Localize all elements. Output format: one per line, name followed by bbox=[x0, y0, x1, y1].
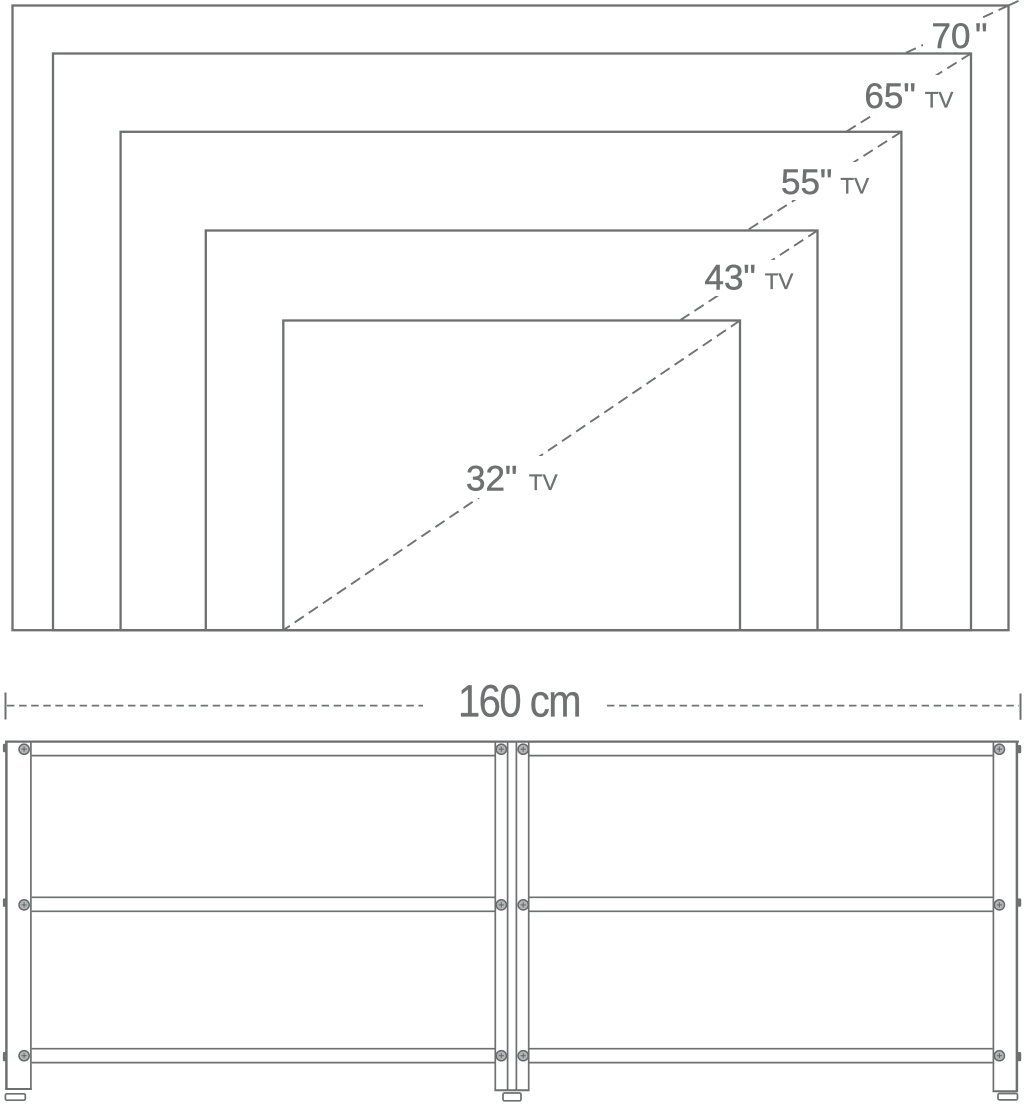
svg-text:43": 43" bbox=[705, 259, 756, 298]
svg-text:160 cm: 160 cm bbox=[458, 676, 580, 727]
svg-text:TV: TV bbox=[529, 470, 558, 495]
svg-text:55": 55" bbox=[781, 163, 832, 202]
svg-text:70": 70" bbox=[932, 17, 988, 56]
svg-text:65": 65" bbox=[864, 77, 915, 116]
svg-text:TV: TV bbox=[925, 88, 954, 113]
svg-text:TV: TV bbox=[765, 269, 794, 294]
svg-text:TV: TV bbox=[840, 173, 869, 198]
svg-text:32": 32" bbox=[466, 460, 517, 499]
